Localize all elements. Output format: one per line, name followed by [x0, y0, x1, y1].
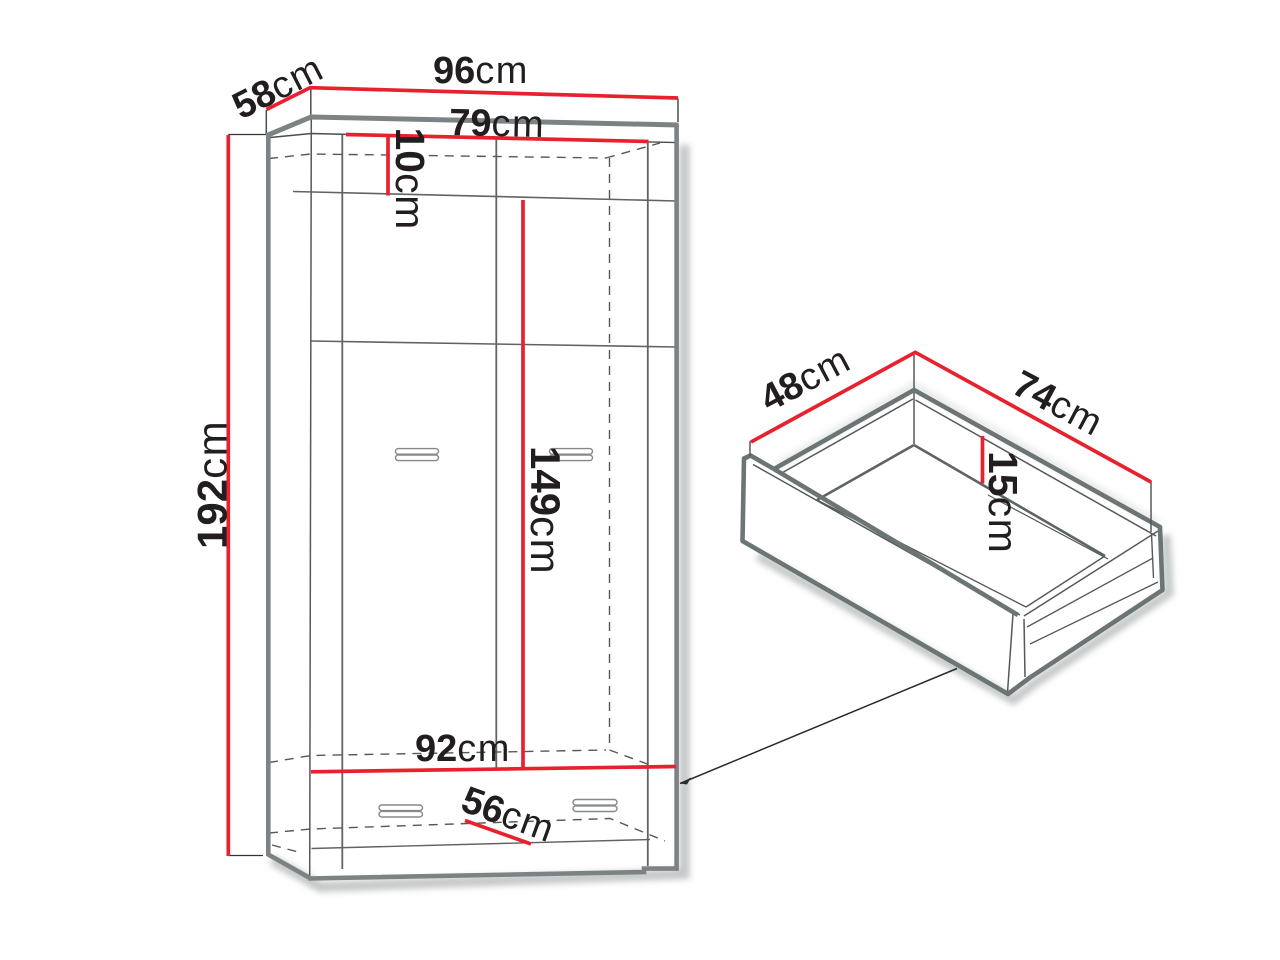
svg-text:96cm: 96cm [433, 50, 529, 92]
svg-text:10cm: 10cm [387, 128, 433, 231]
svg-text:56cm: 56cm [456, 779, 561, 851]
svg-text:149cm: 149cm [522, 446, 569, 575]
svg-text:79cm: 79cm [449, 102, 546, 146]
svg-text:192cm: 192cm [189, 420, 236, 549]
svg-text:48cm: 48cm [754, 338, 858, 420]
svg-text:92cm: 92cm [415, 728, 511, 770]
svg-text:15cm: 15cm [980, 451, 1026, 554]
